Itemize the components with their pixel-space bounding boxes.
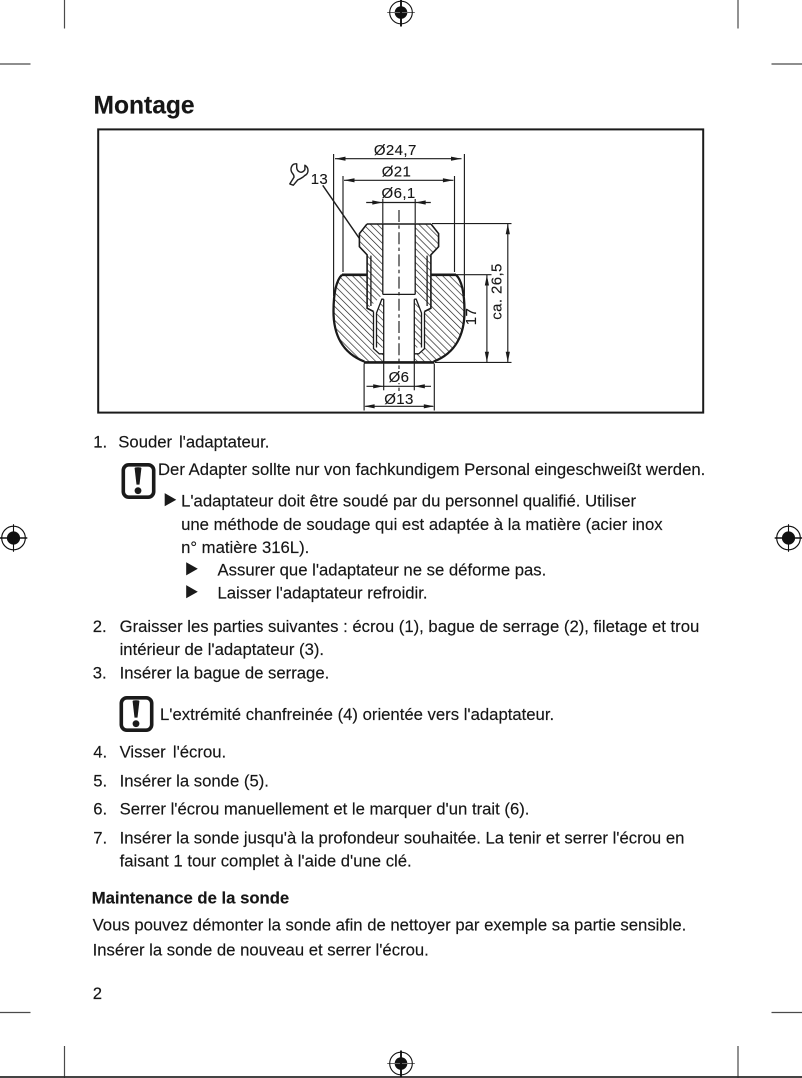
svg-text:Assurer que l'adaptateur ne se: Assurer que l'adaptateur ne se déforme p…: [218, 561, 547, 580]
svg-text:Ø6,1: Ø6,1: [382, 185, 416, 202]
svg-text:Serrer l'écrou manuellement et: Serrer l'écrou manuellement et le marque…: [120, 800, 530, 819]
svg-text:Der Adapter sollte nur von fac: Der Adapter sollte nur von fachkundigem …: [158, 460, 705, 479]
svg-text:Ø21: Ø21: [382, 164, 412, 181]
svg-text:17: 17: [463, 308, 480, 326]
svg-text:5.: 5.: [93, 771, 107, 790]
svg-text:Insérer la bague de serrage.: Insérer la bague de serrage.: [120, 663, 330, 682]
svg-text:Insérer la sonde de nouveau et: Insérer la sonde de nouveau et serrer l'…: [93, 940, 429, 959]
svg-text:Visser l'écrou.: Visser l'écrou.: [120, 742, 227, 761]
svg-text:6.: 6.: [93, 800, 107, 819]
svg-text:13: 13: [311, 171, 329, 188]
svg-text:Maintenance de la sonde: Maintenance de la sonde: [92, 889, 290, 908]
svg-text:2: 2: [93, 984, 102, 1003]
svg-text:ca. 26,5: ca. 26,5: [489, 263, 506, 320]
svg-text:faisant 1 tour complet à l'aid: faisant 1 tour complet à l'aide d'une cl…: [120, 852, 412, 871]
svg-text:L'extrémité chanfreinée (4) or: L'extrémité chanfreinée (4) orientée ver…: [160, 705, 554, 724]
svg-text:2.: 2.: [93, 617, 107, 636]
svg-text:Insérer la sonde (5).: Insérer la sonde (5).: [120, 771, 269, 790]
svg-text:Ø13: Ø13: [384, 391, 414, 408]
svg-text:intérieur de l'adaptateur (3).: intérieur de l'adaptateur (3).: [120, 640, 324, 659]
svg-text:L'adaptateur doit être soudé p: L'adaptateur doit être soudé par du pers…: [181, 491, 636, 510]
svg-text:n° matière 316L).: n° matière 316L).: [181, 538, 309, 557]
svg-text:Graisser les parties suivantes: Graisser les parties suivantes : écrou (…: [120, 617, 700, 636]
svg-text:4.: 4.: [93, 742, 107, 761]
svg-text:Ø6: Ø6: [389, 369, 410, 386]
svg-text:Insérer la sonde jusqu'à la pr: Insérer la sonde jusqu'à la profondeur s…: [120, 829, 685, 848]
svg-text:Souder l'adaptateur.: Souder l'adaptateur.: [118, 433, 269, 452]
svg-text:Laisser l'adaptateur refroidir: Laisser l'adaptateur refroidir.: [218, 584, 428, 603]
svg-text:une méthode de soudage qui est: une méthode de soudage qui est adaptée à…: [181, 515, 663, 534]
svg-text:7.: 7.: [93, 829, 107, 848]
svg-text:Ø24,7: Ø24,7: [374, 142, 417, 159]
svg-text:Vous pouvez démonter la sonde: Vous pouvez démonter la sonde afin de ne…: [93, 916, 687, 935]
svg-text:1.: 1.: [93, 433, 107, 452]
svg-text:Montage: Montage: [94, 93, 195, 120]
svg-text:3.: 3.: [93, 663, 107, 682]
